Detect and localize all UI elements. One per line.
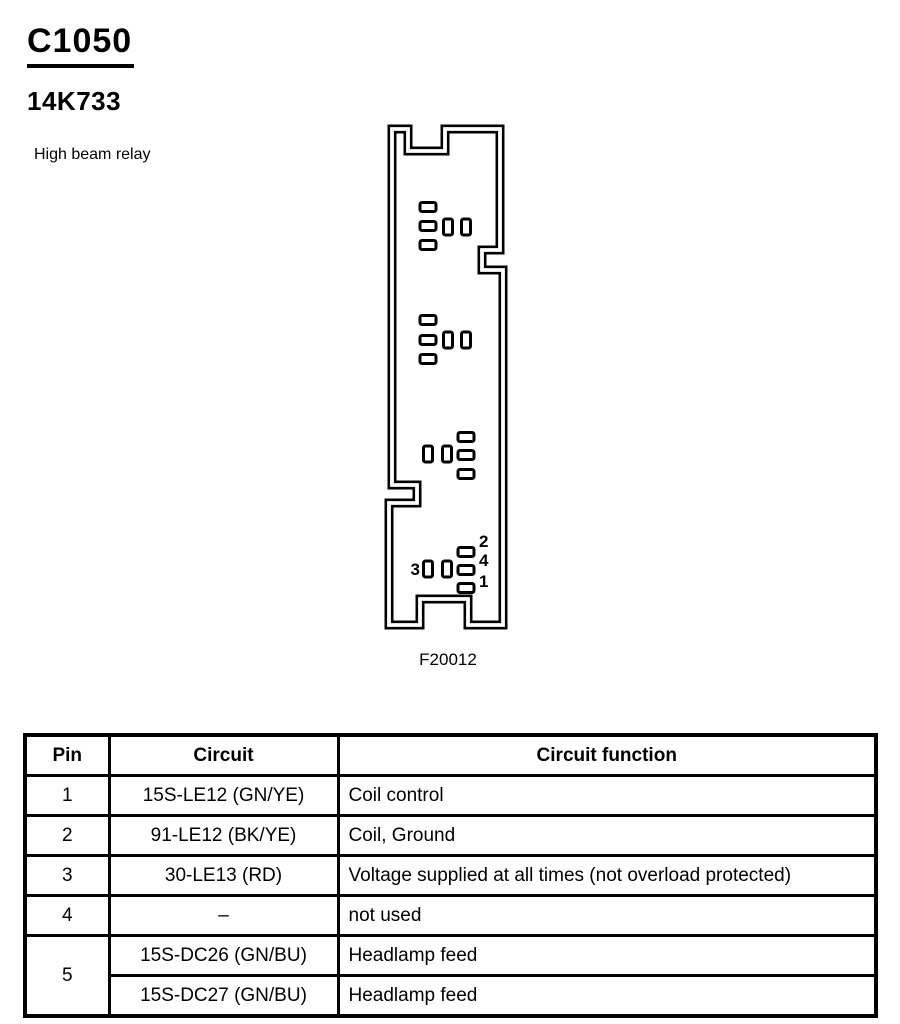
pin-slot [420, 336, 436, 345]
table-row: 3 30-LE13 (RD) Voltage supplied at all t… [25, 856, 876, 896]
pin-cell: 1 [25, 776, 109, 816]
pin-cell: 5 [25, 936, 109, 1017]
pin-slot [444, 219, 453, 235]
pin-slot [462, 219, 471, 235]
pin-number-label: 1 [479, 572, 488, 591]
pin-slot [424, 561, 433, 577]
pin-slot [420, 355, 436, 364]
pin-slot [458, 548, 474, 557]
pin-slot [420, 241, 436, 250]
function-cell: Voltage supplied at all times (not overl… [338, 856, 876, 896]
pin-slot [424, 446, 433, 462]
pin-slot [444, 332, 453, 348]
column-header-pin: Pin [25, 735, 109, 776]
pin-slot [462, 332, 471, 348]
table-row: 5 15S-DC26 (GN/BU) Headlamp feed [25, 936, 876, 976]
pinout-table: Pin Circuit Circuit function 1 15S-LE12 … [23, 733, 878, 1018]
pin-slot [458, 470, 474, 479]
pin-slot [420, 316, 436, 325]
table-header-row: Pin Circuit Circuit function [25, 735, 876, 776]
table-row: 1 15S-LE12 (GN/YE) Coil control [25, 776, 876, 816]
pin-number-label: 2 [479, 532, 488, 551]
function-cell: not used [338, 896, 876, 936]
figure-label: F20012 [382, 650, 514, 670]
part-number: 14K733 [27, 86, 121, 117]
document-page: { "header": { "connector_id": "C1050", "… [0, 0, 900, 1024]
connector-description: High beam relay [34, 146, 151, 164]
circuit-cell: 15S-LE12 (GN/YE) [109, 776, 338, 816]
function-cell: Coil control [338, 776, 876, 816]
circuit-cell: – [109, 896, 338, 936]
pin-slot [443, 561, 452, 577]
pin-cell: 4 [25, 896, 109, 936]
pin-slot [420, 203, 436, 212]
pin-slot [458, 433, 474, 442]
pin-cell: 2 [25, 816, 109, 856]
function-cell: Headlamp feed [338, 976, 876, 1017]
pin-slot [458, 566, 474, 575]
table-row: 2 91-LE12 (BK/YE) Coil, Ground [25, 816, 876, 856]
pin-slot [443, 446, 452, 462]
column-header-circuit: Circuit [109, 735, 338, 776]
pin-cell: 3 [25, 856, 109, 896]
pin-number-label: 3 [411, 560, 420, 579]
table-row: 15S-DC27 (GN/BU) Headlamp feed [25, 976, 876, 1017]
pin-slot [420, 222, 436, 231]
column-header-circuit-function: Circuit function [338, 735, 876, 776]
circuit-cell: 91-LE12 (BK/YE) [109, 816, 338, 856]
circuit-cell: 30-LE13 (RD) [109, 856, 338, 896]
pin-number-label: 4 [479, 551, 489, 570]
function-cell: Coil, Ground [338, 816, 876, 856]
function-cell: Headlamp feed [338, 936, 876, 976]
connector-id-title: C1050 [27, 22, 134, 68]
table-row: 4 – not used [25, 896, 876, 936]
pin-slot [458, 584, 474, 593]
connector-diagram: 3 2 4 1 [382, 122, 512, 637]
circuit-cell: 15S-DC27 (GN/BU) [109, 976, 338, 1017]
pin-slot [458, 451, 474, 460]
circuit-cell: 15S-DC26 (GN/BU) [109, 936, 338, 976]
